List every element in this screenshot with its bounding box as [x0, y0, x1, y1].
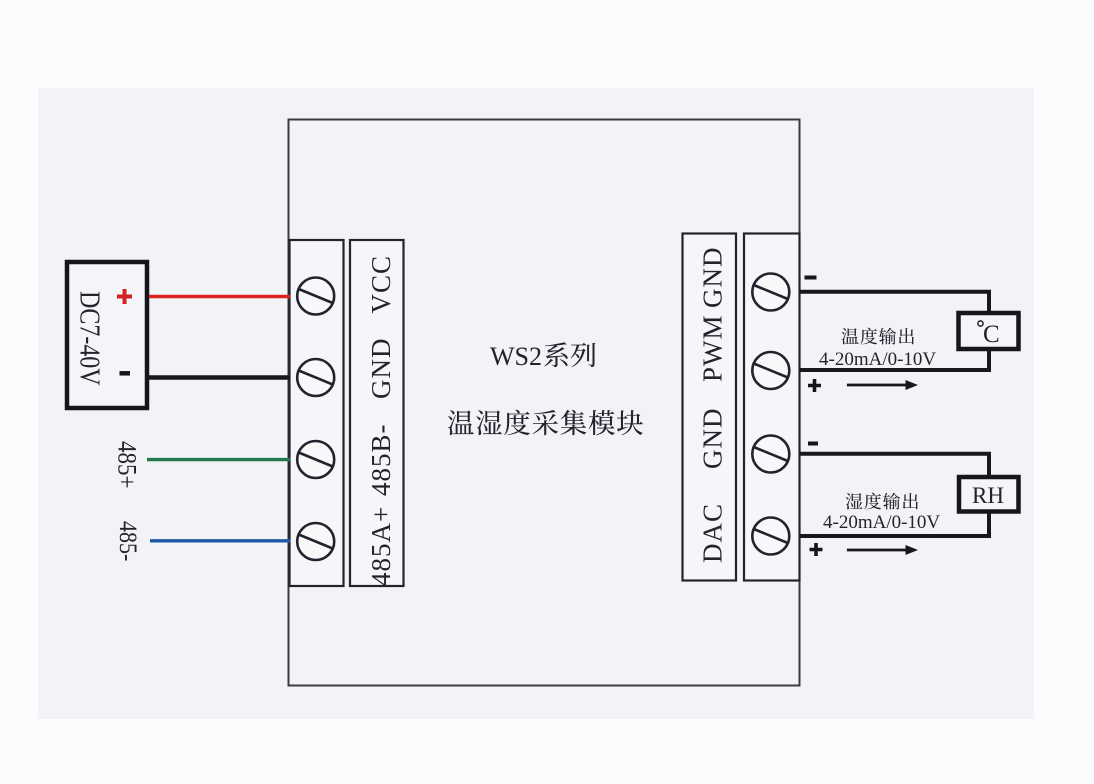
svg-text:VCC: VCC	[366, 255, 396, 314]
svg-text:DAC: DAC	[698, 503, 728, 563]
svg-text:GND: GND	[366, 338, 396, 400]
svg-text:PWM: PWM	[698, 314, 728, 382]
svg-text:485B-: 485B-	[366, 424, 396, 497]
svg-text:C: C	[983, 321, 1000, 348]
svg-text:4-20mA/0-10V: 4-20mA/0-10V	[819, 349, 936, 370]
svg-text:GND: GND	[698, 408, 728, 470]
svg-text:RH: RH	[972, 483, 1004, 508]
svg-text:4-20mA/0-10V: 4-20mA/0-10V	[823, 512, 940, 533]
svg-text:DC7-40V: DC7-40V	[74, 291, 107, 386]
svg-text:485+: 485+	[112, 441, 141, 488]
svg-text:485-: 485-	[114, 521, 142, 561]
svg-text:WS2: WS2	[490, 342, 542, 371]
svg-text:GND: GND	[698, 247, 728, 309]
svg-text:485A+: 485A+	[366, 506, 396, 586]
